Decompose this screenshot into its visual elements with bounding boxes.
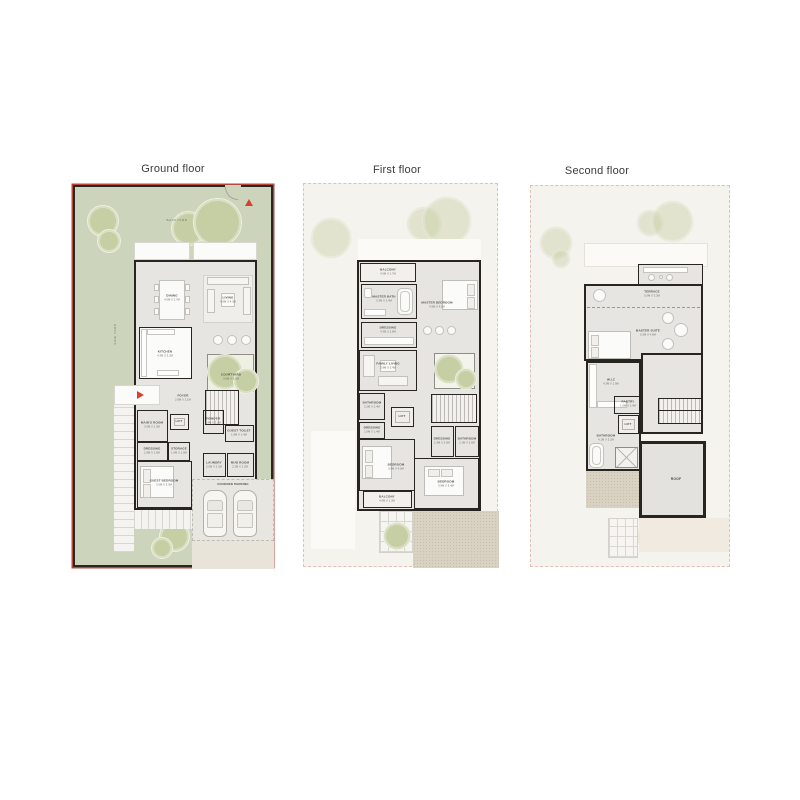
ottoman (241, 335, 251, 345)
room-label: MAID'S ROOM3.0M X 2.3M (141, 421, 163, 428)
ottoman (213, 335, 223, 345)
chair (154, 308, 159, 315)
tree (455, 368, 477, 390)
staircase (658, 398, 702, 424)
tree (310, 217, 352, 259)
bar-stool (659, 275, 663, 279)
room-label: POWDER1.4M X 2.2M (205, 417, 221, 424)
vanity (364, 309, 386, 316)
gate-swing-arc (225, 187, 238, 200)
kitchen-counter (147, 329, 175, 335)
room-label: PANTRY1.5M X 1.4M (620, 400, 636, 407)
room-label: MASTER BEDROOM4.5M X 4.1M (421, 301, 452, 308)
bathtub (589, 443, 604, 468)
sofa (363, 355, 375, 377)
room-label: DINING4.0M X 2.7M (164, 294, 180, 301)
room-label: BACKYARD (166, 219, 187, 223)
room-label: BATHROOM4.1M X 3.2M (597, 434, 616, 441)
room-label: ROOF (671, 477, 681, 481)
room-label: W.I.C4.3M X 1.9M (603, 378, 619, 385)
room-label: TERRACE5.0M X 3.3M (644, 290, 660, 297)
room-label: SIDE YARD (114, 323, 118, 344)
stair-rail (658, 410, 702, 411)
room-label: MASTER BATH3.3M X 2.4M (372, 295, 395, 302)
tree (383, 522, 411, 550)
wardrobe (364, 337, 414, 345)
room-label: BEDROOM3.9M X 3.4M (438, 480, 455, 487)
tree (551, 249, 571, 269)
room-label: BATHROOM2.1M X 2.6M (458, 437, 477, 444)
room-label: GUEST TOILET1.8M X 1.4M (227, 429, 251, 436)
room-label: DRESSING4.3M X 1.8M (380, 326, 397, 333)
ottoman (227, 335, 237, 345)
chair (185, 296, 190, 303)
toilet (364, 288, 372, 298)
room-label: DRESSING1.9M X 2.6M (434, 437, 451, 444)
tile-patio (608, 518, 638, 558)
kitchen-counter (141, 329, 147, 377)
canopy (193, 242, 257, 260)
chair (185, 308, 190, 315)
sofa (207, 289, 215, 313)
room-label: KITCHEN4.3M X 3.2M (157, 350, 173, 357)
sliding-door-line (587, 307, 700, 308)
wardrobe (589, 364, 597, 408)
bed (588, 331, 631, 359)
lounge-chair (593, 289, 606, 302)
parking-ghost (639, 518, 729, 552)
ground-floor-title: Ground floor (73, 163, 273, 175)
sofa (378, 376, 408, 386)
terrace-beige (586, 471, 639, 508)
room-label: DRESSING2.0M X 1.4M (364, 426, 381, 433)
ottoman (447, 326, 456, 335)
chair (154, 296, 159, 303)
side-walkway (114, 405, 134, 552)
room-label: MASTER SUITE5.5M X 4.6M (636, 329, 660, 336)
car (203, 490, 227, 537)
room-label: LIFT (625, 423, 632, 427)
second-floor-title: Second floor (497, 165, 697, 177)
tree (193, 198, 242, 247)
ottoman (423, 326, 432, 335)
room-label: LIFT (176, 420, 183, 424)
room-label: MUD ROOM2.2M X 2.2M (231, 461, 249, 468)
tree (151, 537, 173, 559)
bar-stool (666, 274, 673, 281)
canopy-ghost (358, 239, 481, 260)
room-label: BALCONY4.0M X 1.3M (379, 495, 395, 502)
room-label: LIFT (399, 415, 406, 419)
sofa (207, 277, 249, 285)
round-table (674, 323, 688, 337)
canopy (134, 242, 190, 260)
chair (154, 284, 159, 291)
rear-walkway (134, 510, 192, 529)
bar-stool (648, 274, 655, 281)
staircase (431, 394, 477, 423)
room-label: BATHROOM2.2M X 2.4M (363, 401, 382, 408)
room-label: LIVING4.6M X 4.3M (220, 296, 236, 303)
armchair (662, 312, 674, 324)
room-label: BALCONY4.0M X 1.7M (380, 268, 396, 275)
room-label: COURTYARD3.6M X 3.2M (221, 373, 241, 380)
entry-arrow-icon (137, 391, 144, 399)
room-label: STORAGE1.6M X 1.5M (171, 447, 187, 454)
sofa (243, 287, 251, 315)
chair (185, 284, 190, 291)
floorplan-sheet: Ground floor First floor Second floor (0, 0, 800, 800)
room-label: FAMILY LIVING3.9M X 3.4M (376, 362, 399, 369)
gate-arrow-icon (245, 199, 253, 206)
tree (97, 229, 121, 253)
ground-floor-plan: BACKYARD SIDE YARD DINING4.0M X 2.7M LIV… (73, 185, 273, 567)
armchair (662, 338, 674, 350)
tree (651, 200, 694, 243)
ottoman (435, 326, 444, 335)
room-label: COVERED PARKING (217, 483, 249, 487)
room-label: FOYER2.6M X 2.1M (175, 394, 191, 401)
room-label: LAUNDRY2.0M X 2.2M (206, 461, 222, 468)
room-label: GUEST BEDROOM3.6M X 3.3M (150, 479, 179, 486)
first-floor-title: First floor (297, 164, 497, 176)
room-label: DRESSING1.8M X 1.5M (144, 447, 161, 454)
roof-terrace (413, 511, 499, 568)
second-floor-plan: TERRACE5.0M X 3.3M MASTER SUITE5.5M X 4.… (530, 185, 730, 567)
walkway-ghost (311, 431, 355, 549)
car (233, 490, 257, 537)
bathtub (397, 288, 413, 315)
shower (615, 447, 638, 468)
driveway (192, 541, 274, 569)
kitchen-island (157, 370, 179, 376)
room-label: BEDROOM3.6M X 4.0M (388, 463, 405, 470)
bar-counter (643, 267, 688, 273)
first-floor-plan: BALCONY4.0M X 1.7M MASTER BATH3.3M X 2.4… (303, 183, 498, 567)
